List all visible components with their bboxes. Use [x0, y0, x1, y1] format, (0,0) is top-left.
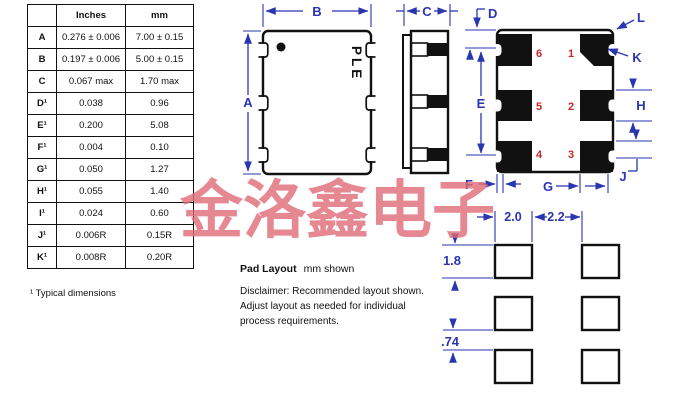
row-gap-dim: .74 [441, 334, 460, 349]
dim-F-label: F [465, 177, 473, 192]
side-view: C [396, 4, 458, 173]
column-gap-dim: 2.2 [547, 210, 564, 224]
pad-width-dim: 2.0 [504, 210, 521, 224]
pin-number-4: 4 [536, 149, 543, 161]
package-drawing-svg: B A PLE [0, 0, 675, 404]
package-marking: PLE [349, 46, 364, 81]
pad-height-dim: 1.8 [443, 253, 461, 268]
dim-B-label: B [312, 4, 321, 19]
disclaimer-text: Disclaimer: Recommended layout shown. Ad… [240, 284, 445, 329]
dim-H-label: H [636, 98, 645, 113]
pin-number-2: 2 [568, 101, 574, 113]
pin-number-6: 6 [536, 48, 542, 60]
land-pad [582, 350, 619, 383]
pad-5 [497, 90, 532, 121]
dim-C-label: C [422, 4, 432, 19]
pad-4 [497, 141, 532, 172]
bottom-view-pin-layout: 6 1 5 2 4 3 D E L K [465, 6, 652, 194]
land-pad [495, 245, 532, 278]
pin-number-5: 5 [536, 101, 542, 113]
dim-A-label: A [243, 95, 253, 110]
pin1-index-dot [277, 43, 286, 52]
dim-D-label: D [488, 6, 497, 21]
land-pad [582, 297, 619, 330]
land-pad [495, 297, 532, 330]
land-pad [582, 245, 619, 278]
dim-E-label: E [477, 96, 486, 111]
top-view: B A PLE [243, 4, 376, 174]
pin-number-3: 3 [568, 149, 574, 161]
pad-3 [580, 141, 613, 172]
dim-J-label: J [619, 169, 626, 184]
datasheet-package-dimensions-page: Inches mm A 0.276 ± 0.006 7.00 ± 0.15 B … [0, 0, 675, 404]
pad-layout-heading: Pad Layoutmm shown [240, 263, 354, 275]
side-view-lid [403, 35, 411, 168]
pad-2 [580, 90, 613, 121]
pad-layout-title: Pad Layout [240, 263, 297, 275]
land-pad [495, 350, 532, 383]
dim-L-label: L [637, 10, 645, 25]
pad-layout-units-note: mm shown [304, 263, 355, 275]
pad-6 [497, 34, 532, 66]
pad-land-pattern: 2.0 2.2 1.8 .74 [441, 210, 619, 383]
dim-K-label: K [632, 50, 642, 65]
dim-G-label: G [543, 179, 553, 194]
pin-number-1: 1 [568, 48, 574, 60]
